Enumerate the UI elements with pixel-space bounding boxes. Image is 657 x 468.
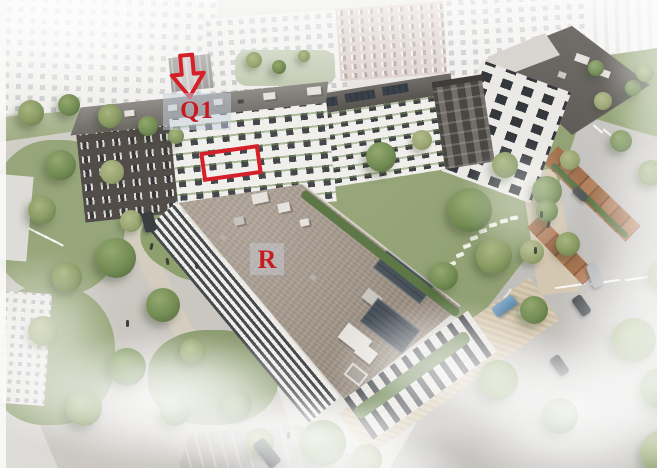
haze-overlay (0, 0, 657, 468)
image-edge-strip (0, 0, 6, 468)
r-label: R (250, 246, 284, 275)
aerial-rendering-scene: Q1 R (0, 0, 657, 468)
q1-label: Q1 (165, 97, 229, 125)
